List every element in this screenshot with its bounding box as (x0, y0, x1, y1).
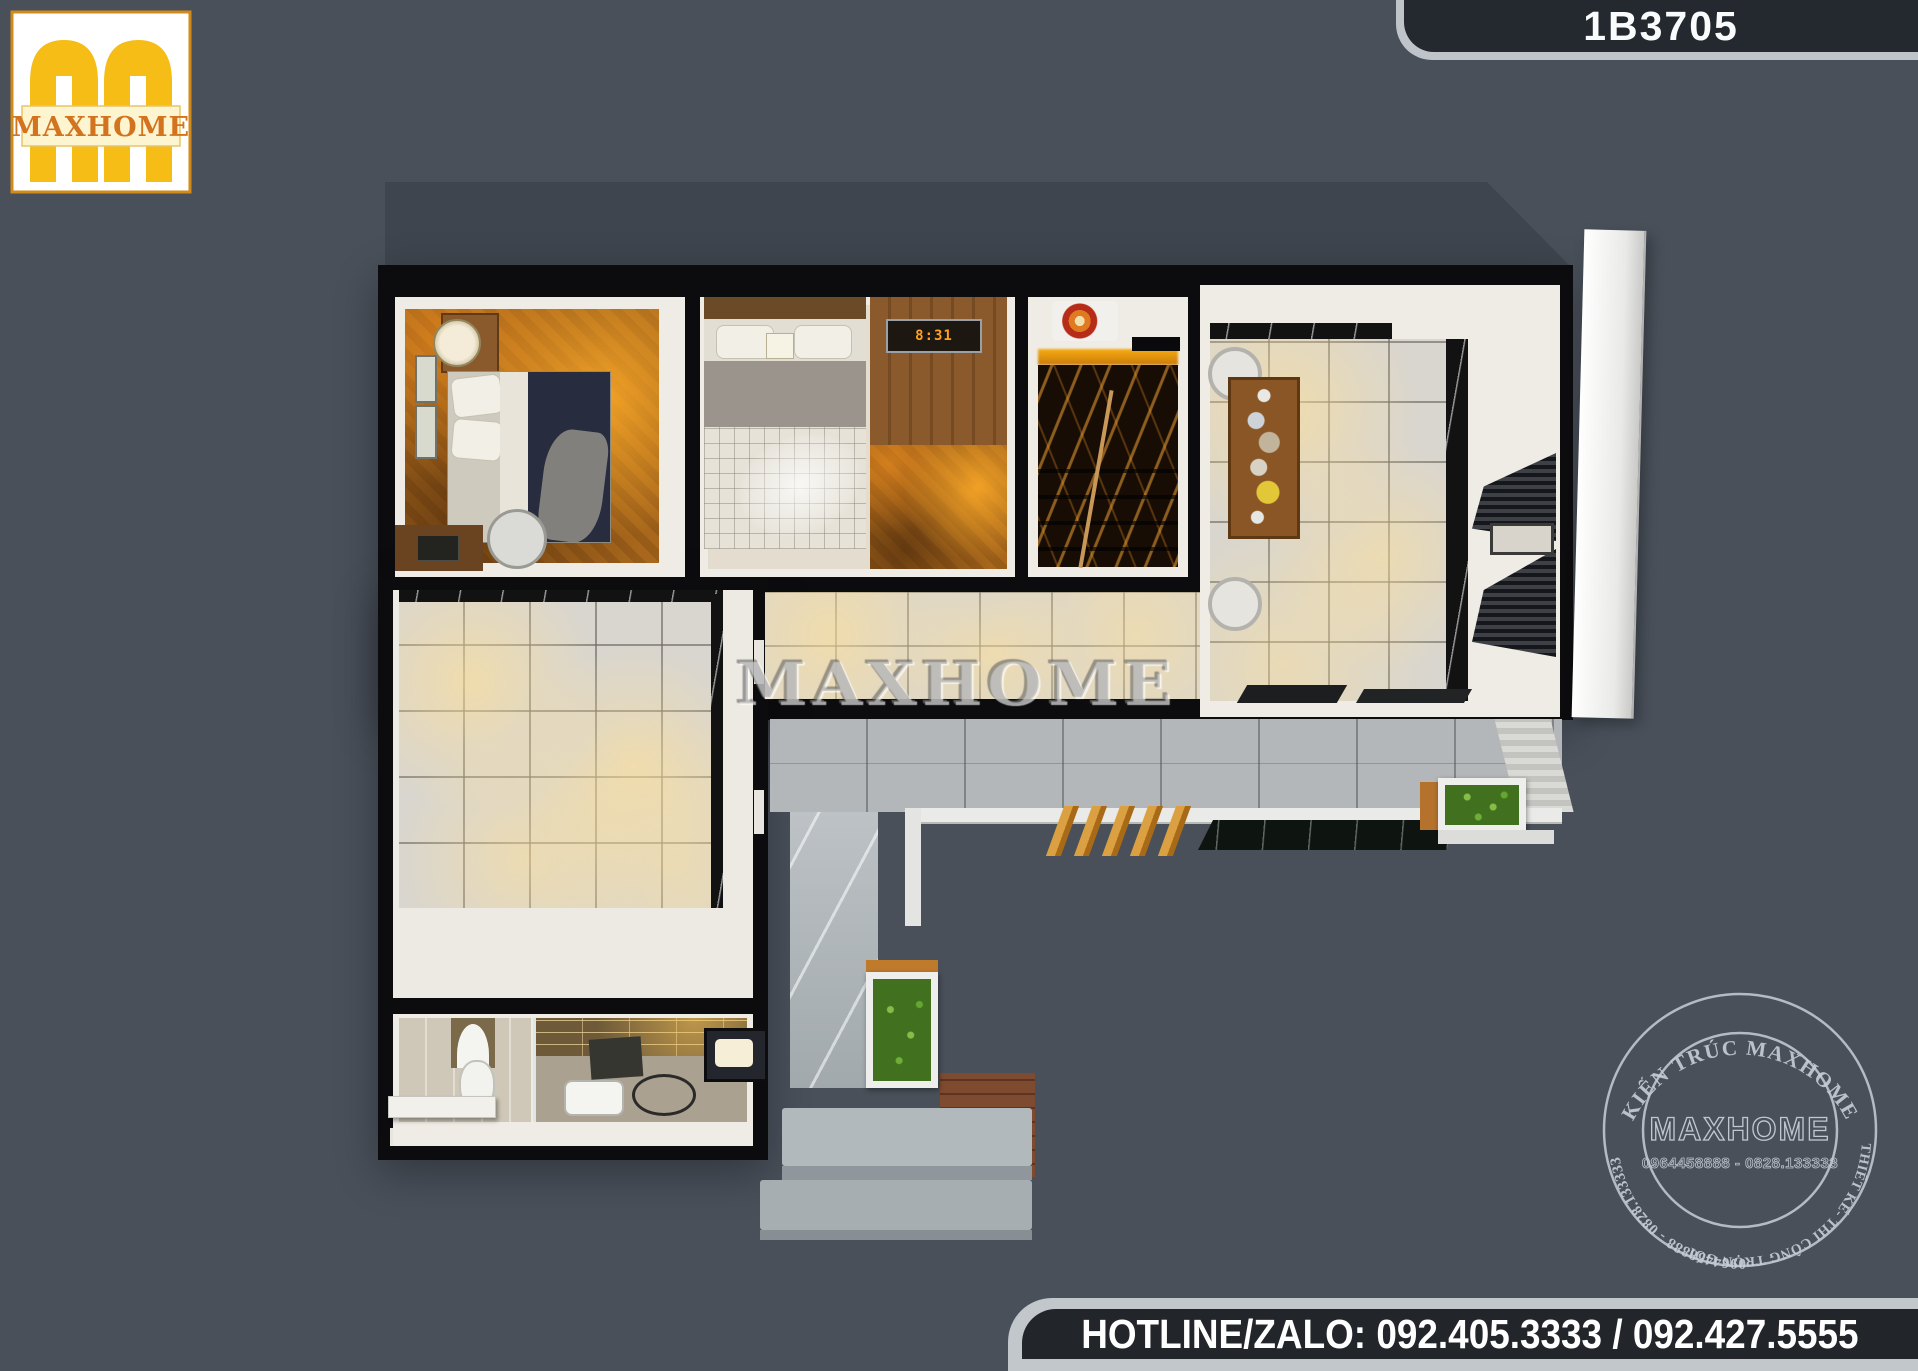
maxhome-stamp: KIẾN TRÚC MAXHOME THIẾT KẾ- THI CÔNG TRỌ… (1590, 980, 1890, 1280)
pergola-beams (1055, 806, 1205, 856)
marble-coping (1198, 820, 1448, 850)
bedroom-2-wood-floor (870, 445, 1007, 569)
marble-border-right (1446, 339, 1468, 701)
round-stool (1208, 577, 1262, 631)
shower-bench (589, 1036, 644, 1080)
maxhome-logo-icon: MAXHOME (10, 10, 192, 194)
wall-art-frame (415, 405, 437, 459)
balcony-railing-post (905, 808, 921, 926)
clock-display: 8:31 (915, 328, 953, 344)
stamp-center-phones: 0964458888 - 0828.133333 (1642, 1155, 1838, 1172)
concrete-wall-face (790, 812, 878, 1088)
hotline-text: HOTLINE/ZALO: 092.405.3333 / 092.427.555… (1081, 1311, 1858, 1358)
planter-wood-edge (1420, 782, 1438, 830)
code-badge: 1B3705 (1396, 0, 1918, 60)
planter-box (1438, 778, 1526, 832)
stamp-center-brand: MAXHOME (1649, 1111, 1830, 1147)
mirror-cabinet-light (715, 1039, 753, 1067)
entry-step-face (782, 1166, 1032, 1180)
mirror-cabinet (704, 1028, 768, 1082)
bed (704, 297, 866, 549)
bedroom-1 (395, 297, 685, 577)
ceiling-shadow-plane (385, 182, 1570, 266)
ceiling-light-red (1052, 301, 1118, 341)
living-room (1200, 285, 1560, 717)
bed-blanket (704, 361, 866, 427)
entry-step (760, 1180, 1032, 1230)
logo-brand-text: MAXHOME (12, 112, 190, 143)
hotline-bar: HOTLINE/ZALO: 092.405.3333 / 092.427.555… (1008, 1298, 1918, 1371)
bedroom-2: 8:31 (700, 297, 1015, 577)
exterior-ledge (388, 1096, 496, 1118)
altar-table (1228, 377, 1300, 539)
center-watermark: MAXHOME (735, 649, 1155, 718)
wood-beam (1074, 806, 1107, 856)
bathroom (393, 1014, 753, 1146)
design-code: 1B3705 (1583, 3, 1739, 50)
marble-border-top (399, 590, 723, 602)
wall-art-frame (415, 355, 437, 403)
entry-step-face (760, 1230, 1032, 1240)
planter-base (1438, 830, 1554, 844)
maxhome-logo: MAXHOME (10, 10, 192, 194)
marble-border-top (1210, 323, 1392, 339)
pillow (794, 325, 852, 359)
wood-beam (1130, 806, 1163, 856)
floor-mat (1356, 689, 1472, 703)
stair-treads (1038, 447, 1178, 567)
stairwell (1028, 297, 1188, 577)
floor-mat (1237, 685, 1347, 703)
stamp-seal-icon: KIẾN TRÚC MAXHOME THIẾT KẾ- THI CÔNG TRỌ… (1590, 980, 1890, 1280)
stair-railing-stub (1132, 337, 1180, 351)
vanity-zone (536, 1018, 747, 1122)
wall-window-slit (754, 790, 764, 834)
pendant-lamp (766, 333, 794, 359)
desk-chair (487, 509, 547, 569)
planter-box (866, 972, 938, 1088)
hall (393, 590, 753, 998)
round-rug (632, 1074, 696, 1116)
open-door-panel (1572, 229, 1647, 718)
pillow (450, 418, 503, 462)
desk-monitor (417, 535, 459, 561)
hotline-bar-inner: HOTLINE/ZALO: 092.405.3333 / 092.427.555… (1022, 1309, 1918, 1359)
pillow (450, 373, 505, 419)
tv-console: 8:31 (886, 319, 982, 353)
window-frame (1490, 523, 1554, 555)
entry-step (782, 1108, 1032, 1166)
wood-beam (1102, 806, 1135, 856)
headboard (704, 297, 866, 319)
stair-cove-light (1038, 349, 1178, 365)
table-lamp (433, 319, 481, 367)
wood-beam (1158, 806, 1191, 856)
hall-floor (399, 594, 723, 908)
marble-border-right (711, 594, 723, 908)
code-badge-inner: 1B3705 (1404, 0, 1918, 52)
sink (564, 1080, 624, 1116)
render-page: 8:31 (0, 0, 1918, 1371)
